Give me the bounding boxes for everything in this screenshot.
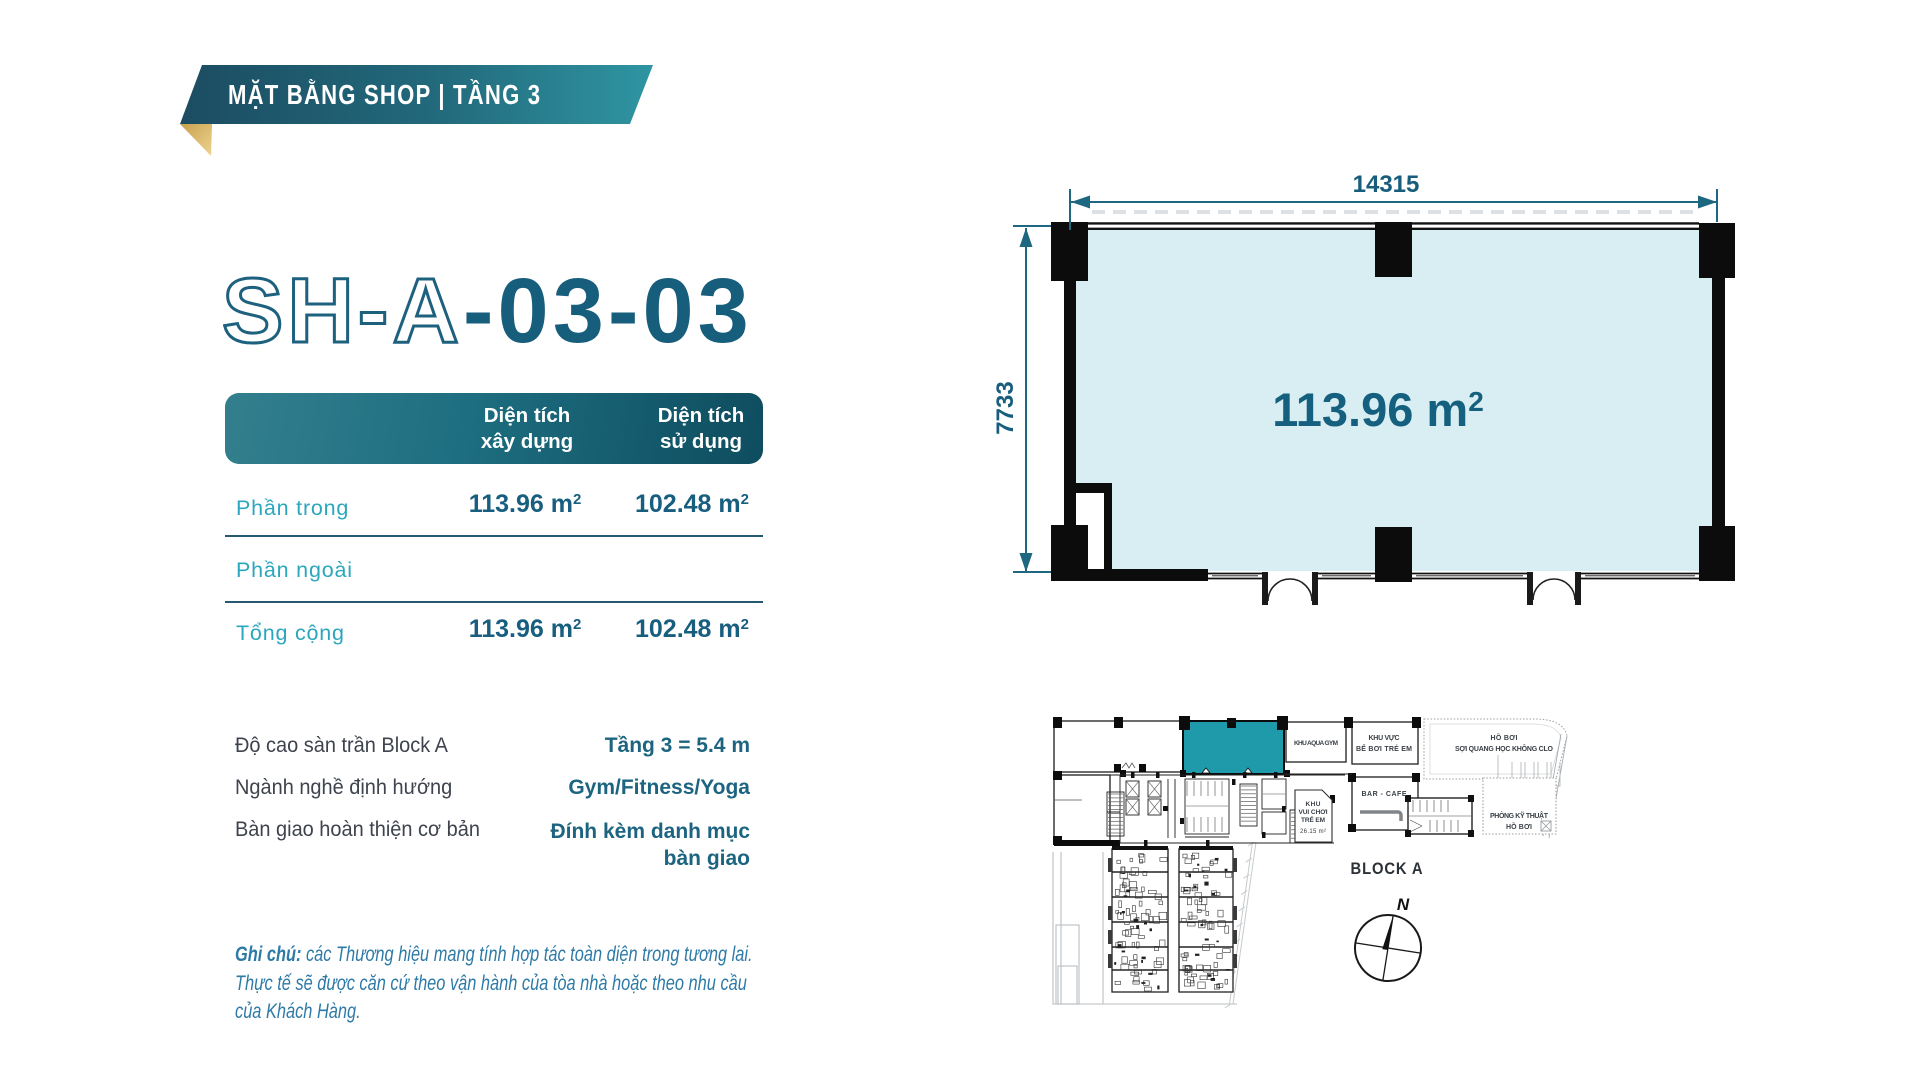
svg-text:SỢI QUANG HỌC KHÔNG CLO: SỢI QUANG HỌC KHÔNG CLO	[1455, 744, 1554, 753]
svg-text:TRẺ EM: TRẺ EM	[1301, 815, 1325, 824]
svg-text:BỂ BƠI TRẺ EM: BỂ BƠI TRẺ EM	[1356, 744, 1412, 753]
svg-text:7733: 7733	[992, 381, 1019, 434]
svg-text:26.15 m²: 26.15 m²	[1300, 829, 1326, 835]
svg-text:VUI CHƠI: VUI CHƠI	[1299, 809, 1328, 816]
svg-text:14315: 14315	[1353, 171, 1420, 198]
svg-text:KHU VỰC: KHU VỰC	[1369, 735, 1400, 742]
svg-text:BLOCK A: BLOCK A	[1351, 859, 1424, 878]
svg-text:N: N	[1397, 895, 1410, 914]
svg-text:BAR - CAFE: BAR - CAFE	[1362, 791, 1407, 798]
svg-text:KHU: KHU	[1306, 801, 1321, 808]
svg-text:113.96 m2: 113.96 m2	[1272, 383, 1484, 436]
svg-text:KHU AQUA GYM: KHU AQUA GYM	[1294, 740, 1338, 747]
svg-text:PHÒNG KỸ THUẬT: PHÒNG KỸ THUẬT	[1490, 811, 1549, 820]
